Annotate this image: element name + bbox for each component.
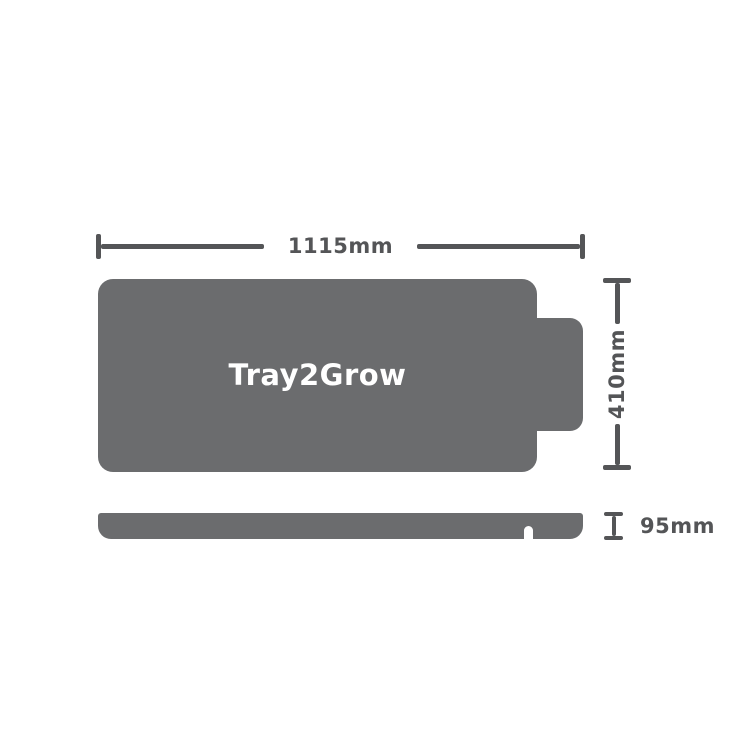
product-name-label: Tray2Grow <box>229 361 407 390</box>
width-dimension: 1115mm <box>96 234 585 259</box>
dimension-end-cap-right <box>580 234 585 259</box>
dimension-end-cap-bottom <box>604 536 623 540</box>
drain-notch <box>524 526 533 539</box>
tray-side-view <box>98 513 583 539</box>
dimension-line-segment <box>612 516 616 536</box>
dimension-line-segment <box>417 244 580 249</box>
width-dimension-label: 1115mm <box>264 236 417 257</box>
tray-top-view: Tray2Grow <box>98 279 537 472</box>
dimension-line-segment <box>615 283 620 324</box>
dimension-line-segment <box>101 244 264 249</box>
dimension-end-cap-bottom <box>603 465 631 470</box>
dimension-line-segment <box>615 424 620 465</box>
depth-dimension-label: 95mm <box>640 512 715 540</box>
product-dimension-diagram: 1115mm Tray2Grow 410mm 95mm <box>0 0 750 750</box>
height-dimension: 410mm <box>603 278 631 470</box>
depth-dimension <box>604 512 623 540</box>
height-dimension-label: 410mm <box>607 329 628 419</box>
tray-spout-tab <box>530 318 583 431</box>
